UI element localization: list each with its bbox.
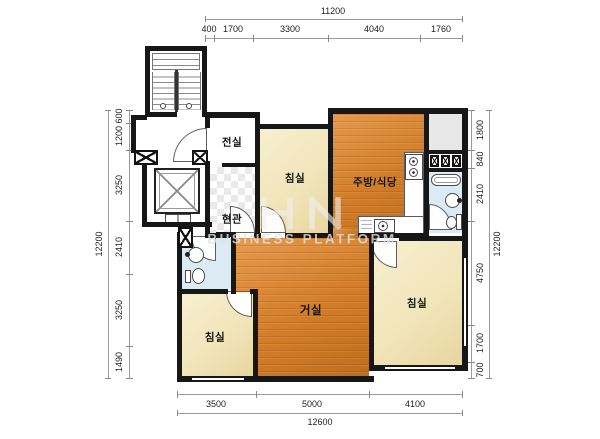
dim-right-seg: 1800 [475, 120, 485, 140]
wall-segment [328, 108, 468, 114]
window [464, 258, 466, 346]
wall-segment [255, 124, 333, 129]
room-label-kitchen: 주방/식당 [353, 175, 397, 190]
dim-tick [105, 378, 111, 379]
wall-segment [253, 289, 258, 382]
dim-line [108, 110, 109, 378]
sink-icon [188, 247, 204, 263]
dim-tick [126, 274, 133, 275]
dim-tick [468, 221, 475, 222]
dim-tick [462, 35, 463, 42]
dim-tick [462, 391, 463, 398]
watermark-logo [252, 196, 356, 230]
shaft-x-icon [134, 150, 158, 165]
dim-right-seg: 1700 [475, 333, 485, 353]
dim-line [205, 19, 462, 20]
kitchen-sink-bowl [378, 221, 388, 231]
dim-tick [205, 16, 206, 22]
shaft-x-icon [192, 150, 208, 165]
bathtub-icon [431, 174, 461, 186]
corridor-wall [131, 115, 136, 153]
stair-wall [202, 46, 207, 117]
utility-floor [429, 114, 462, 150]
dim-left-seg: 600 [114, 108, 124, 123]
dim-left-seg: 3250 [114, 175, 124, 195]
room-label-bedroom-right: 침실 [407, 296, 427, 311]
dim-tick [468, 150, 475, 151]
dim-top-seg: 400 [201, 24, 216, 34]
wall-segment [424, 108, 429, 238]
watermark-text: BUSINESS PLATFORM [207, 232, 396, 247]
dim-tick [328, 35, 329, 42]
stair-wall [145, 46, 150, 117]
elevator-lobby-wall [142, 165, 147, 227]
window [385, 367, 455, 369]
dim-tick [468, 378, 475, 379]
wall-segment [424, 168, 468, 172]
dim-top-total: 11200 [321, 6, 345, 16]
dim-left-seg: 1200 [114, 126, 124, 146]
dim-top-seg: 4040 [364, 24, 384, 34]
dim-tick [462, 410, 463, 416]
dim-line [205, 38, 462, 39]
room-label-vestibule: 전실 [222, 135, 242, 150]
room-label-living: 거실 [300, 302, 322, 318]
dim-tick [468, 362, 475, 363]
wall-segment [399, 236, 468, 241]
dim-left-total: 12200 [94, 231, 104, 256]
dim-right-seg: 840 [475, 151, 485, 166]
dim-top-seg: 3300 [280, 24, 300, 34]
dim-bottom-seg: 5000 [302, 399, 322, 409]
stair-wall [145, 112, 177, 117]
dim-top-seg: 1700 [223, 24, 243, 34]
dim-left-seg: 1490 [114, 352, 124, 372]
dim-tick [468, 325, 475, 326]
dim-bottom-seg: 3500 [206, 399, 226, 409]
wall-segment [424, 150, 468, 154]
dim-tick [420, 35, 421, 42]
elevator-lobby-wall [142, 222, 212, 227]
toilet-tank-icon [185, 270, 191, 283]
drainboard-icon [361, 220, 372, 232]
window-x-icon [452, 155, 461, 167]
stair-wall [145, 46, 207, 51]
stair-divider [175, 70, 178, 112]
room-label-entry: 현관 [222, 212, 242, 227]
dim-top-seg: 1760 [431, 24, 451, 34]
dim-tick [462, 16, 463, 22]
wall-segment [177, 232, 182, 382]
dim-bottom-total: 12600 [307, 417, 332, 427]
toilet-bowl-icon [446, 216, 457, 229]
burner-icon [409, 157, 418, 166]
dim-line [177, 394, 462, 395]
dim-line [489, 110, 490, 378]
dim-tick [468, 110, 475, 111]
dim-tick [177, 391, 178, 398]
elevator-inner-frame [159, 173, 195, 209]
dim-left-seg: 2410 [114, 237, 124, 257]
dim-line [177, 413, 462, 414]
dim-tick [126, 346, 133, 347]
elevator [154, 168, 200, 214]
wall-segment [222, 163, 255, 167]
room-label-bedroom-left: 침실 [205, 330, 225, 345]
dim-right-seg: 4750 [475, 263, 485, 283]
dim-tick [256, 391, 257, 398]
dim-tick [177, 410, 178, 416]
dim-tick [369, 391, 370, 398]
room-label-bedroom-top: 침실 [285, 171, 305, 186]
bathtub-inner [434, 177, 458, 183]
stair-post [160, 103, 166, 109]
dim-right-total: 12200 [492, 231, 502, 256]
burner-icon [409, 168, 418, 177]
dim-right-seg: 700 [475, 362, 485, 377]
floor-plan: 전실 현관 침실 주방/식당 거실 침실 침실 BUSINESS PLATFOR… [0, 0, 600, 439]
window-x-icon [430, 155, 439, 167]
dim-tick [126, 110, 133, 111]
dim-bottom-seg: 4100 [405, 399, 425, 409]
dim-tick [126, 378, 133, 379]
faucet-icon [185, 252, 190, 257]
window-x-icon [441, 155, 450, 167]
dim-tick [253, 35, 254, 42]
dim-tick [126, 221, 133, 222]
wall-segment [369, 236, 374, 371]
dim-tick [468, 168, 475, 169]
stair-landing [152, 53, 200, 70]
toilet-bowl-icon [192, 268, 205, 284]
dim-tick [205, 35, 206, 42]
stair-post [186, 103, 192, 109]
wall-segment [177, 289, 228, 294]
dim-tick [105, 110, 111, 111]
wall-segment [205, 112, 260, 118]
window [192, 378, 244, 380]
dim-tick [486, 110, 492, 111]
dim-left-seg: 3250 [114, 300, 124, 320]
dim-tick [214, 35, 215, 42]
dim-tick [486, 378, 492, 379]
dim-right-seg: 2410 [475, 184, 485, 204]
shaft-x-icon [178, 227, 193, 248]
